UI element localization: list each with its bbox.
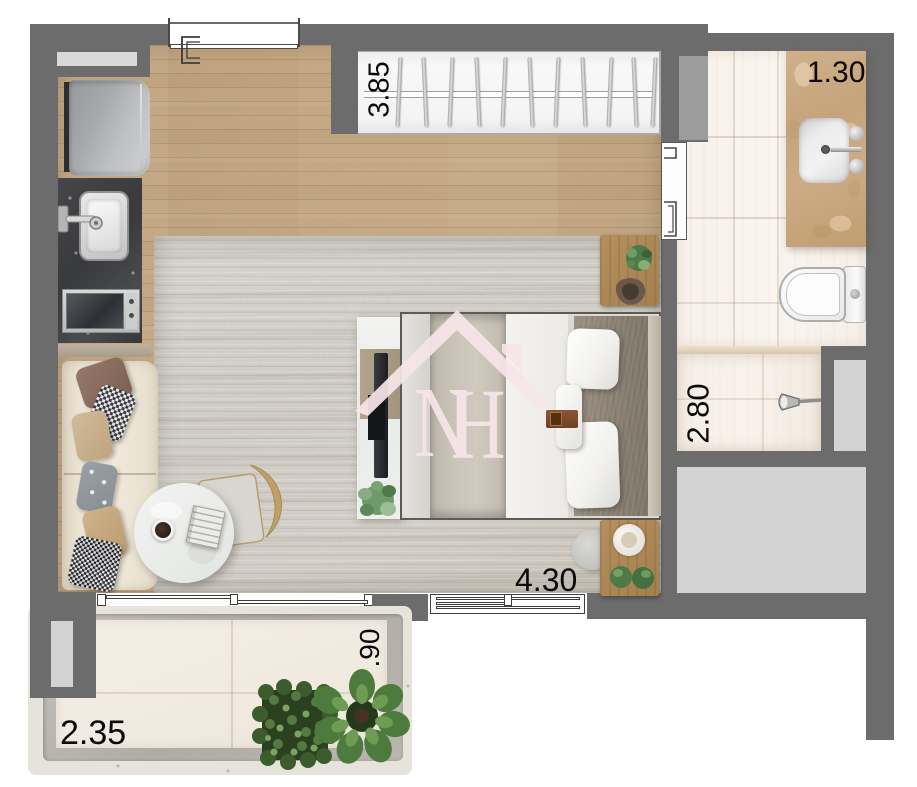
svg-text:H: H	[451, 369, 506, 481]
